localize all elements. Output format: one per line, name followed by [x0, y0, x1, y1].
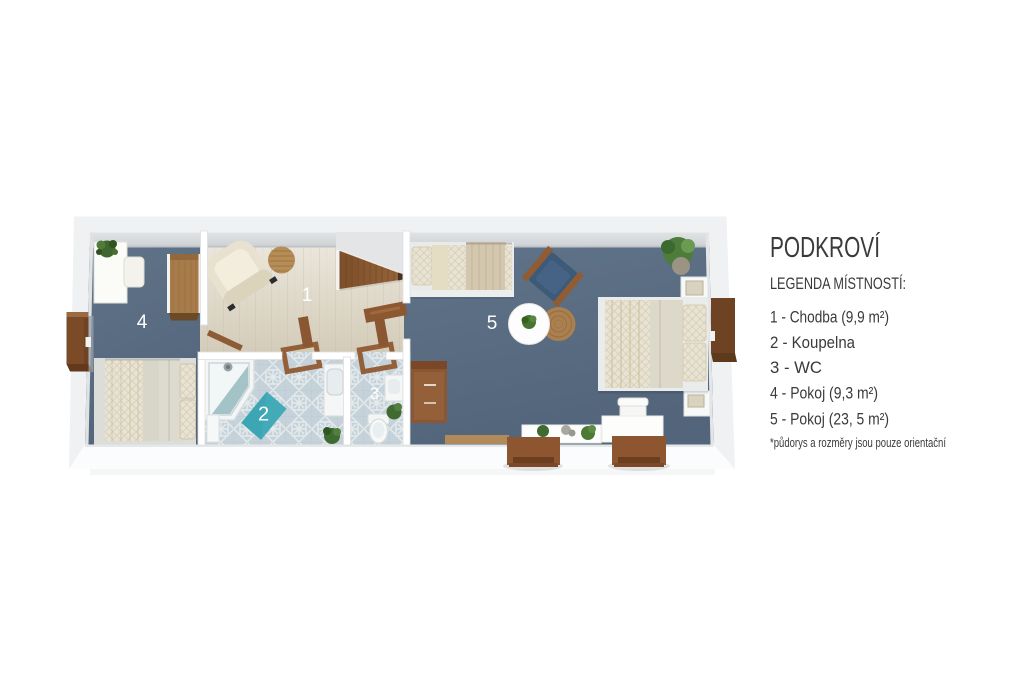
- svg-text:3 - WC: 3 - WC: [770, 358, 822, 377]
- svg-text:1: 1: [302, 285, 313, 306]
- svg-text:3: 3: [370, 384, 379, 403]
- svg-text:2 - Koupelna: 2 - Koupelna: [770, 333, 855, 352]
- svg-text:4 - Pokoj (9,3 m²): 4 - Pokoj (9,3 m²): [770, 384, 878, 403]
- svg-text:PODKROVÍ: PODKROVÍ: [770, 231, 881, 264]
- svg-text:1 - Chodba (9,9 m²): 1 - Chodba (9,9 m²): [770, 308, 889, 327]
- svg-text:5 - Pokoj (23, 5 m²): 5 - Pokoj (23, 5 m²): [770, 410, 889, 429]
- svg-text:5: 5: [487, 313, 498, 334]
- svg-text:4: 4: [137, 312, 148, 333]
- svg-text:2: 2: [258, 404, 269, 426]
- svg-text:*půdorys a rozměry jsou pouze: *půdorys a rozměry jsou pouze orientační: [770, 436, 946, 450]
- svg-text:LEGENDA MÍSTNOSTÍ:: LEGENDA MÍSTNOSTÍ:: [770, 274, 906, 293]
